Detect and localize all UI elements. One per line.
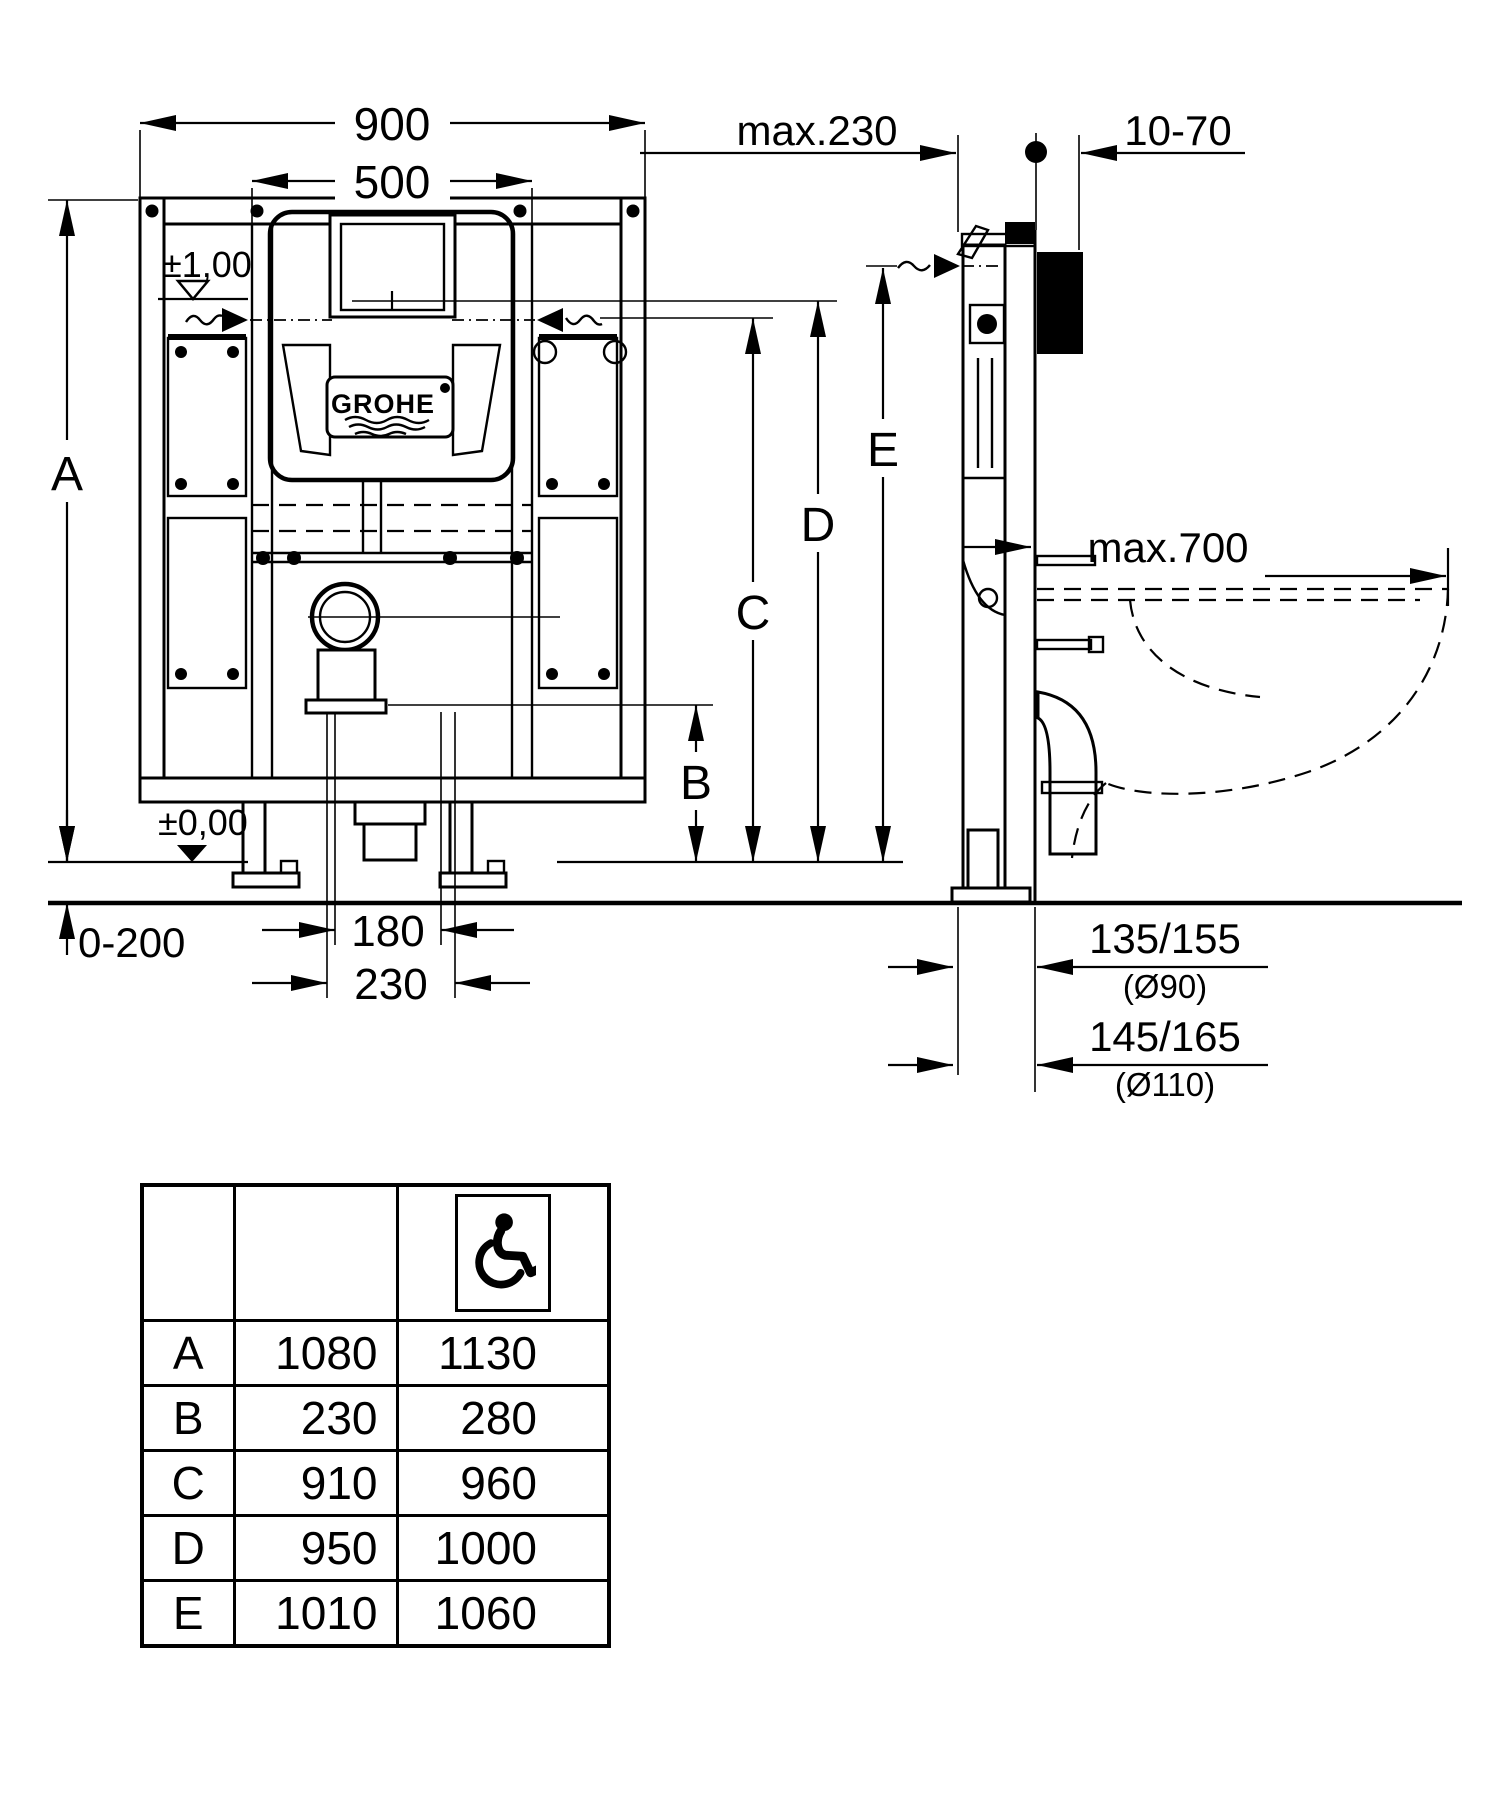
side-foot-plate [952, 888, 1030, 902]
side-frame-leg [968, 830, 998, 888]
standard-value: 910 [234, 1451, 397, 1516]
registered-mark-icon [440, 383, 450, 393]
header-standard [234, 1185, 397, 1321]
height-label-b: B [680, 757, 712, 810]
standard-value: 1010 [234, 1581, 397, 1646]
dim-bowl-depth: max.700 [1087, 524, 1248, 571]
table-row: A 1080 1130 [142, 1321, 609, 1386]
row-letter: D [142, 1516, 234, 1581]
row-letter: A [142, 1321, 234, 1386]
frame-leg [450, 802, 472, 873]
height-label-c: C [736, 587, 771, 640]
standard-value: 1080 [234, 1321, 397, 1386]
tank-left-wall [283, 345, 330, 455]
dim-drain-230: 230 [354, 960, 427, 1009]
level-zero: ±0,00 [158, 802, 248, 843]
side-drain-elbow [1038, 692, 1096, 854]
wc-bowl-outline [1037, 589, 1448, 858]
drain-flange [306, 700, 386, 713]
dim-drain-offset-110: 145/165 [1089, 1013, 1241, 1060]
drain-stub-pipe [364, 824, 416, 860]
table-header-row [142, 1185, 609, 1321]
accessible-value: 1130 [397, 1321, 609, 1386]
standard-value: 950 [234, 1516, 397, 1581]
foot-plate [440, 873, 506, 887]
level-plus-100: ±1,00 [162, 244, 252, 285]
dim-inner-width: 500 [354, 156, 431, 208]
frame-bottom-rail [140, 778, 645, 802]
header-accessible [397, 1185, 609, 1321]
height-label-a: A [51, 448, 83, 501]
height-label-e: E [867, 424, 899, 477]
standard-value: 230 [234, 1386, 397, 1451]
mounting-stud [1037, 640, 1091, 649]
header-empty [142, 1185, 234, 1321]
wheelchair-icon [470, 1211, 536, 1295]
frame-right-rail [621, 198, 645, 802]
cable-roller-icon [534, 341, 556, 363]
dim-overall-width: 900 [354, 98, 431, 150]
accessible-value: 280 [397, 1386, 609, 1451]
installation-frame-drawing: GROHE [0, 0, 1500, 1150]
foot-plate [233, 873, 299, 887]
dim-drain-180: 180 [351, 907, 424, 956]
grohe-logo-text: GROHE [331, 389, 435, 419]
spec-table: A 1080 1130 B 230 280 C 910 960 D 950 10… [140, 1183, 611, 1648]
accessible-value: 1060 [397, 1581, 609, 1646]
dim-wall-distance: max.230 [736, 107, 897, 154]
accessible-value: 960 [397, 1451, 609, 1516]
drain-elbow [318, 650, 375, 700]
accessible-value: 1000 [397, 1516, 609, 1581]
table-row: E 1010 1060 [142, 1581, 609, 1646]
table-row: B 230 280 [142, 1386, 609, 1451]
table-row: D 950 1000 [142, 1516, 609, 1581]
technical-drawing-page: GROHE [0, 0, 1500, 1798]
level-mark-icon [177, 845, 207, 862]
dim-covering-thickness: 10-70 [1124, 107, 1231, 154]
drain-stub-flange [355, 802, 425, 824]
dim-drain-offset-90: 135/155 [1089, 915, 1241, 962]
dim-drain-dia-110: (Ø110) [1115, 1066, 1215, 1103]
grohe-logo: GROHE [327, 377, 453, 437]
sound-insulation-block [1037, 252, 1083, 354]
height-label-d: D [801, 499, 836, 552]
water-supply-arrow-icon [186, 308, 332, 332]
row-letter: B [142, 1386, 234, 1451]
row-letter: E [142, 1581, 234, 1646]
dim-drain-dia-90: (Ø90) [1123, 968, 1207, 1005]
water-supply-arrow-icon [452, 308, 773, 332]
tank-right-wall [453, 345, 500, 455]
row-letter: C [142, 1451, 234, 1516]
wheelchair-icon-box [455, 1194, 551, 1312]
dim-floor-adjust: 0-200 [78, 919, 185, 966]
frame-left-rail [140, 198, 164, 802]
table-row: C 910 960 [142, 1451, 609, 1516]
reference-point-icon [1025, 141, 1047, 163]
